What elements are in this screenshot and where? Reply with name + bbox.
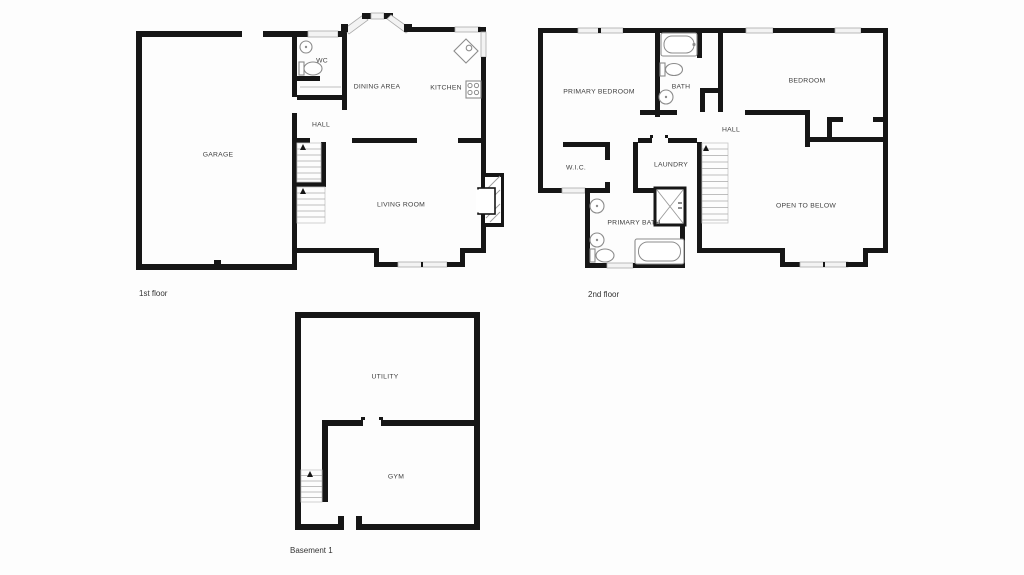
sink-icon bbox=[590, 233, 604, 247]
basement-plan bbox=[295, 312, 480, 530]
fireplace-icon bbox=[476, 173, 504, 227]
room-label-primary-bedroom: PRIMARY BEDROOM bbox=[563, 90, 634, 97]
floor-plan-drawing bbox=[0, 0, 1024, 575]
floor-caption-basement: Basement 1 bbox=[290, 546, 333, 556]
sink-icon bbox=[300, 41, 312, 53]
bathtub-icon bbox=[661, 33, 697, 56]
room-label-living-room: LIVING ROOM bbox=[377, 203, 425, 210]
room-label-kitchen: KITCHEN bbox=[430, 86, 462, 93]
room-label-laundry: LAUNDRY bbox=[654, 163, 688, 170]
floor-plan-page: GARAGE WC DINING AREA KITCHEN HALL LIVIN… bbox=[0, 0, 1024, 575]
sink-icon bbox=[659, 90, 673, 104]
window bbox=[455, 27, 480, 32]
corner-sink-icon bbox=[454, 39, 478, 63]
window bbox=[308, 31, 338, 37]
window bbox=[481, 32, 486, 57]
room-label-primary-bath: PRIMARY BATH bbox=[607, 221, 660, 228]
stairs-icon bbox=[297, 142, 326, 223]
room-label-utility: UTILITY bbox=[371, 375, 398, 382]
stove-icon bbox=[466, 81, 481, 98]
second-floor-plan bbox=[538, 28, 888, 268]
room-label-wic: W.I.C. bbox=[566, 166, 586, 173]
room-label-dining-area: DINING AREA bbox=[354, 85, 401, 92]
room-label-wc: WC bbox=[316, 59, 328, 66]
window bbox=[562, 188, 585, 193]
room-label-open-to-below: OPEN TO BELOW bbox=[776, 204, 836, 211]
room-label-bedroom: BEDROOM bbox=[789, 79, 826, 86]
floor-caption-second: 2nd floor bbox=[588, 290, 619, 300]
stairs-icon bbox=[702, 143, 728, 223]
window bbox=[835, 28, 861, 33]
floor-caption-first: 1st floor bbox=[139, 289, 167, 299]
toilet-icon bbox=[660, 63, 683, 76]
bay-window-icon bbox=[341, 13, 412, 34]
stairs-icon bbox=[301, 470, 322, 502]
bathtub-icon bbox=[635, 239, 684, 264]
room-label-hall-first: HALL bbox=[312, 123, 330, 130]
garage-door-icon bbox=[214, 260, 221, 265]
room-label-bath: BATH bbox=[672, 85, 691, 92]
window bbox=[607, 263, 633, 268]
room-label-hall-second: HALL bbox=[722, 128, 740, 135]
sink-icon bbox=[590, 199, 604, 213]
room-label-gym: GYM bbox=[388, 475, 404, 482]
first-floor-plan bbox=[136, 13, 504, 270]
toilet-icon bbox=[590, 249, 614, 262]
room-label-garage: GARAGE bbox=[203, 153, 234, 160]
window bbox=[746, 28, 773, 33]
